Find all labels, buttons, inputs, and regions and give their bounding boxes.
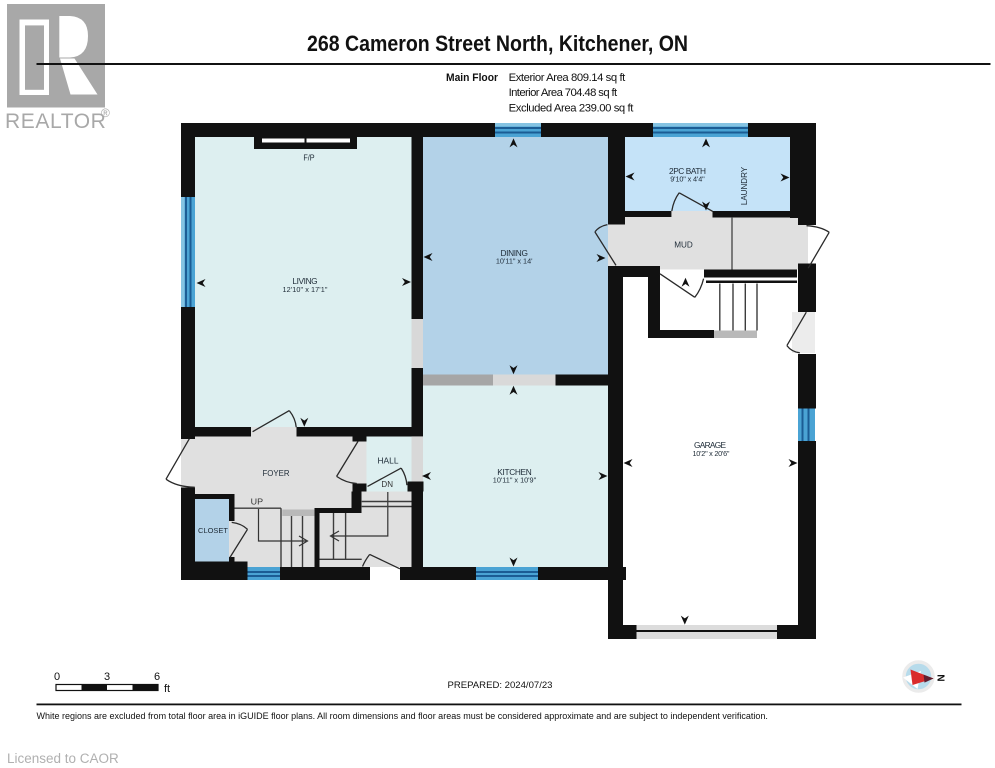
svg-text:Interior Area 704.48 sq ft: Interior Area 704.48 sq ft: [509, 87, 618, 99]
svg-text:FOYER: FOYER: [263, 468, 290, 478]
svg-text:10'11" x 14': 10'11" x 14': [496, 257, 533, 266]
svg-text:PREPARED: 2024/07/23: PREPARED: 2024/07/23: [448, 680, 553, 690]
svg-text:Exterior Area 809.14 sq ft: Exterior Area 809.14 sq ft: [509, 72, 627, 84]
svg-text:®: ®: [101, 106, 110, 120]
svg-text:UP: UP: [251, 496, 264, 506]
svg-text:10'2" x 20'6": 10'2" x 20'6": [693, 449, 730, 458]
svg-text:0: 0: [54, 671, 60, 683]
svg-text:268 Cameron Street North, Kitc: 268 Cameron Street North, Kitchener, ON: [307, 31, 688, 56]
svg-text:HALL: HALL: [378, 456, 399, 466]
svg-text:REALTOR: REALTOR: [5, 110, 106, 133]
svg-text:N: N: [935, 674, 946, 681]
svg-text:Excluded Area 239.00 sq ft: Excluded Area 239.00 sq ft: [509, 102, 635, 114]
svg-text:LAUNDRY: LAUNDRY: [739, 166, 749, 205]
svg-text:ft: ft: [164, 683, 170, 695]
svg-text:DN: DN: [381, 479, 393, 489]
svg-text:CLOSET: CLOSET: [198, 526, 228, 535]
svg-text:3: 3: [104, 671, 110, 683]
svg-text:MUD: MUD: [674, 239, 693, 249]
svg-text:White regions are excluded fro: White regions are excluded from total fl…: [37, 711, 768, 721]
svg-text:12'10" x 17'1": 12'10" x 17'1": [283, 285, 328, 294]
svg-text:Main Floor: Main Floor: [446, 72, 499, 84]
svg-text:6: 6: [154, 671, 160, 683]
svg-text:9'10" x 4'4": 9'10" x 4'4": [670, 175, 705, 184]
svg-text:10'11" x 10'9": 10'11" x 10'9": [493, 475, 537, 484]
svg-text:F/P: F/P: [303, 153, 314, 162]
svg-text:Licensed to CAOR: Licensed to CAOR: [7, 751, 119, 766]
